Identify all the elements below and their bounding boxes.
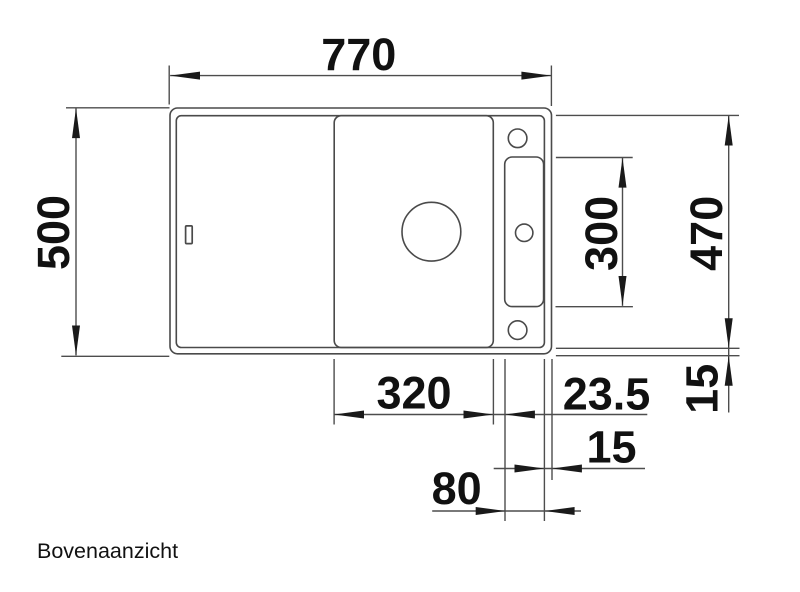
svg-text:Bovenaanzicht: Bovenaanzicht: [37, 539, 178, 563]
svg-text:320: 320: [376, 368, 451, 419]
svg-text:15: 15: [677, 364, 728, 414]
svg-text:770: 770: [321, 29, 396, 80]
svg-text:300: 300: [576, 196, 627, 271]
svg-text:470: 470: [681, 196, 732, 271]
svg-text:500: 500: [28, 195, 79, 270]
svg-text:80: 80: [432, 463, 482, 514]
svg-text:23.5: 23.5: [563, 368, 651, 419]
svg-text:15: 15: [586, 422, 636, 473]
